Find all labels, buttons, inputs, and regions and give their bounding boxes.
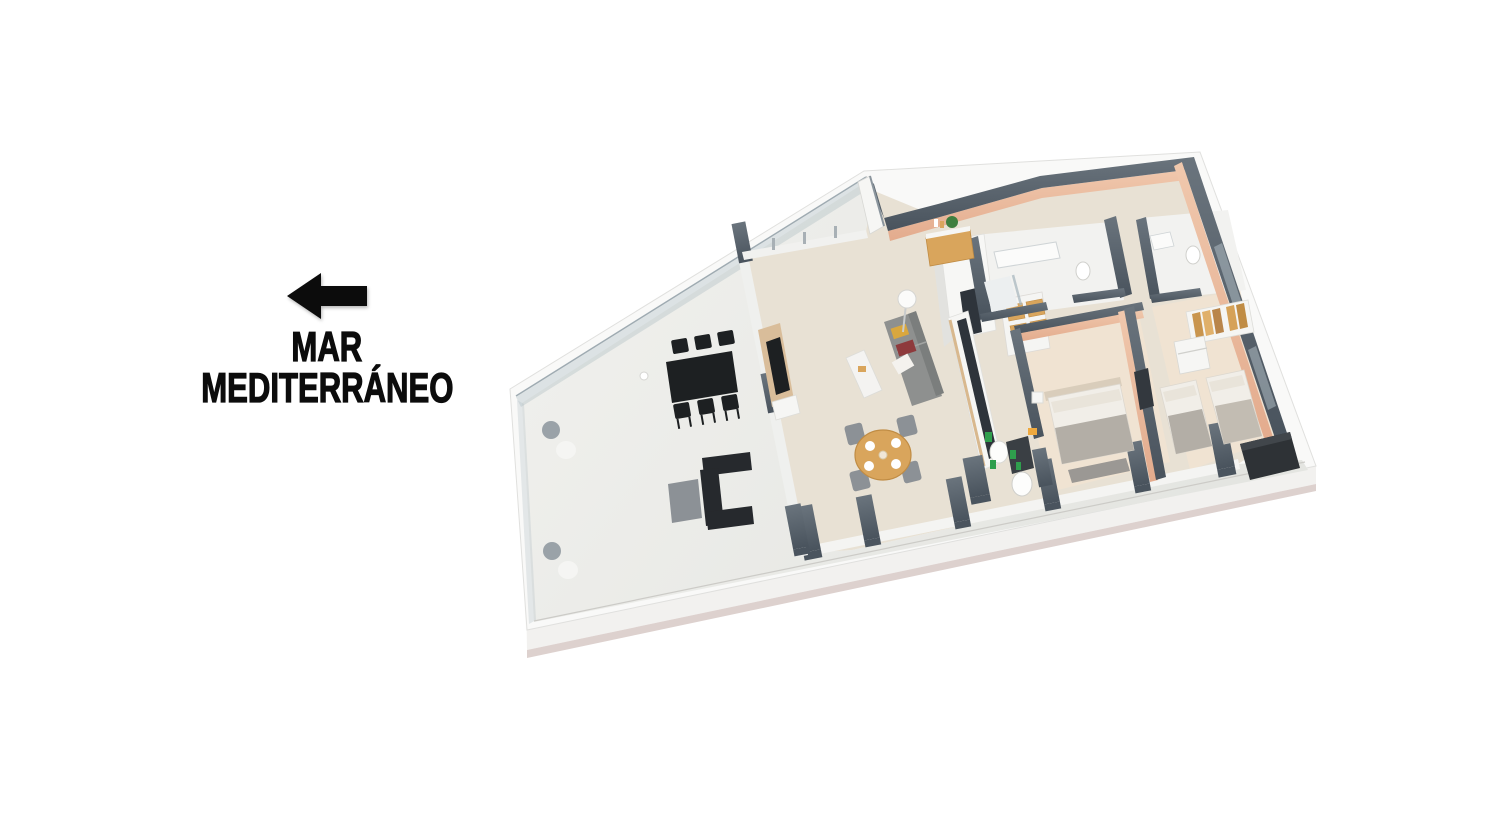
sea-direction-label: MAR MEDITERRÁNEO <box>160 271 494 408</box>
planter <box>556 441 576 459</box>
ensuite-green-accent <box>1016 462 1021 470</box>
sideboard-bottle <box>934 219 938 227</box>
sideboard-plant <box>946 216 958 228</box>
bath1-toilet <box>1076 262 1090 280</box>
nightstand <box>1032 392 1043 403</box>
centerpiece <box>879 451 887 459</box>
coffee-table-deco <box>858 366 866 372</box>
kitchen-green-accent <box>985 432 992 442</box>
terrace-floor-light <box>543 542 561 560</box>
ensuite-toilet <box>1012 472 1032 496</box>
left-arrow-icon <box>285 271 369 321</box>
ensuite-towel <box>1028 428 1037 435</box>
terrace-floor-light <box>542 421 560 439</box>
outdoor-ottoman <box>668 479 702 523</box>
plate <box>891 438 901 448</box>
shelf-unit <box>1174 336 1210 374</box>
terrace-deco <box>640 372 648 380</box>
kitchen-sink <box>990 441 1008 463</box>
floor-lamp-shade <box>898 290 916 308</box>
sea-label-line1: MAR <box>292 326 363 368</box>
plate <box>864 461 874 471</box>
plate <box>865 441 875 451</box>
ensuite-green-accent <box>1010 450 1016 459</box>
plate <box>891 459 901 469</box>
floor-plan-render: MAR MEDITERRÁNEO <box>0 0 1500 813</box>
sea-label-line2: MEDITERRÁNEO <box>201 368 453 408</box>
kitchen-green-accent <box>990 460 996 469</box>
planter <box>558 561 578 579</box>
sideboard-bottle <box>940 221 944 228</box>
bath2-toilet <box>1186 246 1200 264</box>
